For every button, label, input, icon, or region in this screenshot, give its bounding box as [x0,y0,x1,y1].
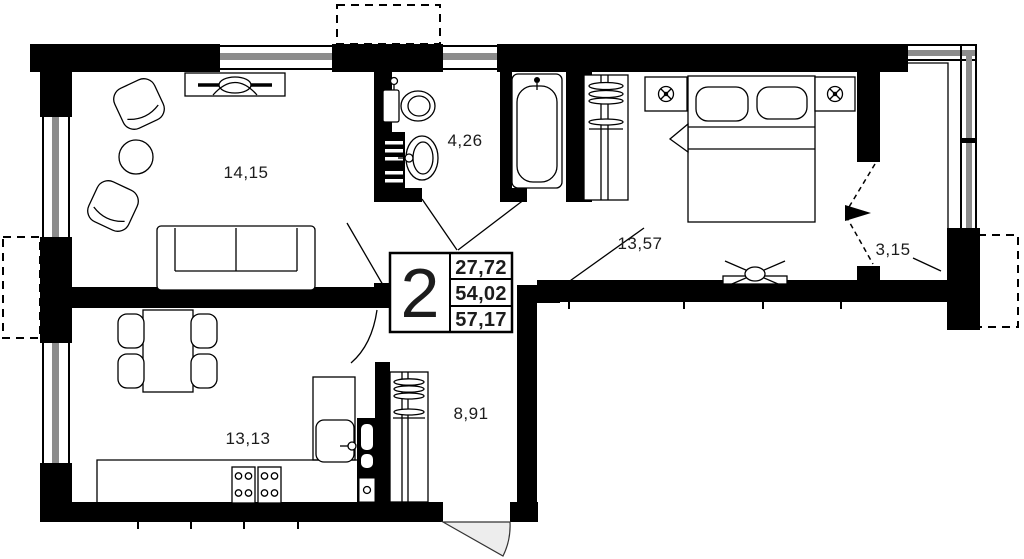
wall-left-upper [40,44,72,117]
room-label-bedroom: 13,57 [617,234,662,253]
room-label-living: 14,15 [223,163,268,182]
wall-balcony-upper [857,44,880,162]
unit-info-box: 2 27,72 54,02 57,17 [390,253,512,332]
wall-kitchen-hall [375,362,390,507]
chair [191,354,217,388]
blanket-fold [670,124,688,152]
wall-vent-symbol [723,261,787,287]
tv-stand [185,73,285,96]
bathtub [512,74,562,188]
wall-bedroom-door-stub [537,280,560,303]
kitchen-sink [316,420,356,462]
stove [232,467,281,503]
dashed-box-top [337,5,440,44]
room-label-balcony: 3,15 [875,240,910,259]
toilet [383,90,435,122]
kitchen [97,310,377,505]
living-room [84,73,315,290]
chair [118,314,144,348]
wc-room [383,78,438,191]
room-label-bathroom: 4,26 [447,131,482,150]
side-table [119,140,153,174]
entrance-door-swing [443,522,510,556]
lamp-icon [659,87,674,102]
nightstand [815,77,855,111]
double-bed [670,76,815,222]
window-living-left [40,110,72,243]
armchair [84,177,142,235]
chair [118,354,144,388]
dining-table [143,310,193,392]
wardrobe [584,75,628,200]
hallway [390,372,428,502]
balcony-door [845,164,875,264]
appliance-column [357,418,377,505]
unit-number: 2 [401,254,440,332]
window-bathroom-top [443,45,497,70]
room-label-kitchen: 13,13 [225,429,270,448]
balcony-glazing-right [960,44,977,237]
balcony-door-arrow [845,205,871,221]
armchair [110,75,168,133]
wall-right-block [947,228,980,330]
balcony-label-leader [913,258,941,271]
dashed-box-left [3,237,40,338]
bedroom [584,75,855,287]
bath-door-leaf [458,199,525,250]
wall-wc-bottom [374,188,422,202]
area-value-apartment: 54,02 [455,283,507,305]
wall-top-right [497,44,908,72]
floor-plan-canvas: 14,15 4,26 13,57 3,15 13,13 8,91 2 27,72… [0,0,1024,559]
towel-radiator [383,132,405,190]
wall-balcony-lower-stub [857,266,880,302]
room-label-hallway: 8,91 [453,404,488,423]
nightstand [645,77,687,111]
wc-door-leaf [422,199,457,250]
bath-room [512,74,562,188]
wall-hall-right [517,285,537,522]
chair [191,314,217,348]
floor-plan-page: 14,15 4,26 13,57 3,15 13,13 8,91 2 27,72… [0,0,1024,559]
kitchen-door-leaf [351,310,377,363]
wall-bath-left [500,70,512,202]
window-living-top [215,44,337,72]
sofa [157,226,315,290]
hall-wardrobe [390,372,428,502]
area-value-total: 57,17 [455,309,507,331]
living-room-door-leaf [347,223,383,285]
lamp-icon [828,87,843,102]
window-kitchen-left [40,336,72,469]
area-value-living: 27,72 [455,257,507,279]
